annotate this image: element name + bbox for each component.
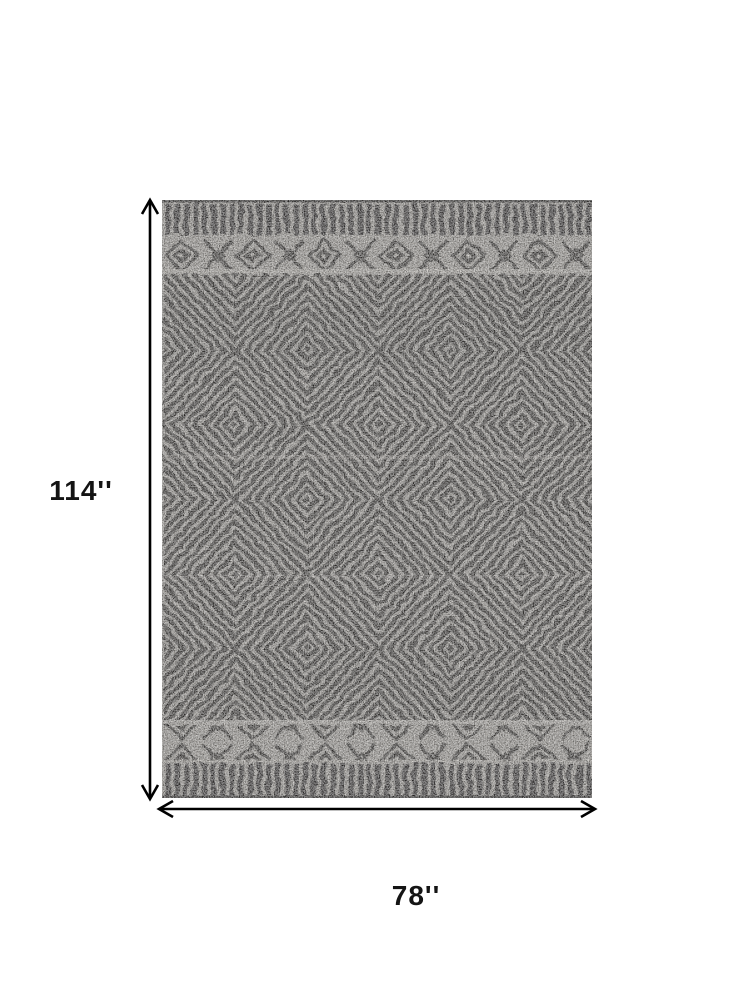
height-arrow bbox=[142, 200, 158, 799]
width-arrow bbox=[159, 801, 595, 817]
arrowhead-left-icon bbox=[159, 801, 173, 817]
arrowhead-down-icon bbox=[142, 785, 158, 799]
texture-overlay-light bbox=[162, 200, 592, 798]
rug-image bbox=[162, 200, 592, 798]
height-dimension-label: 114'' bbox=[31, 474, 131, 508]
product-dimension-image: 114'' 78'' bbox=[0, 0, 750, 1000]
arrowhead-right-icon bbox=[581, 801, 595, 817]
arrowhead-up-icon bbox=[142, 200, 158, 214]
rug-pattern bbox=[162, 200, 592, 798]
width-dimension-label: 78'' bbox=[366, 879, 466, 913]
